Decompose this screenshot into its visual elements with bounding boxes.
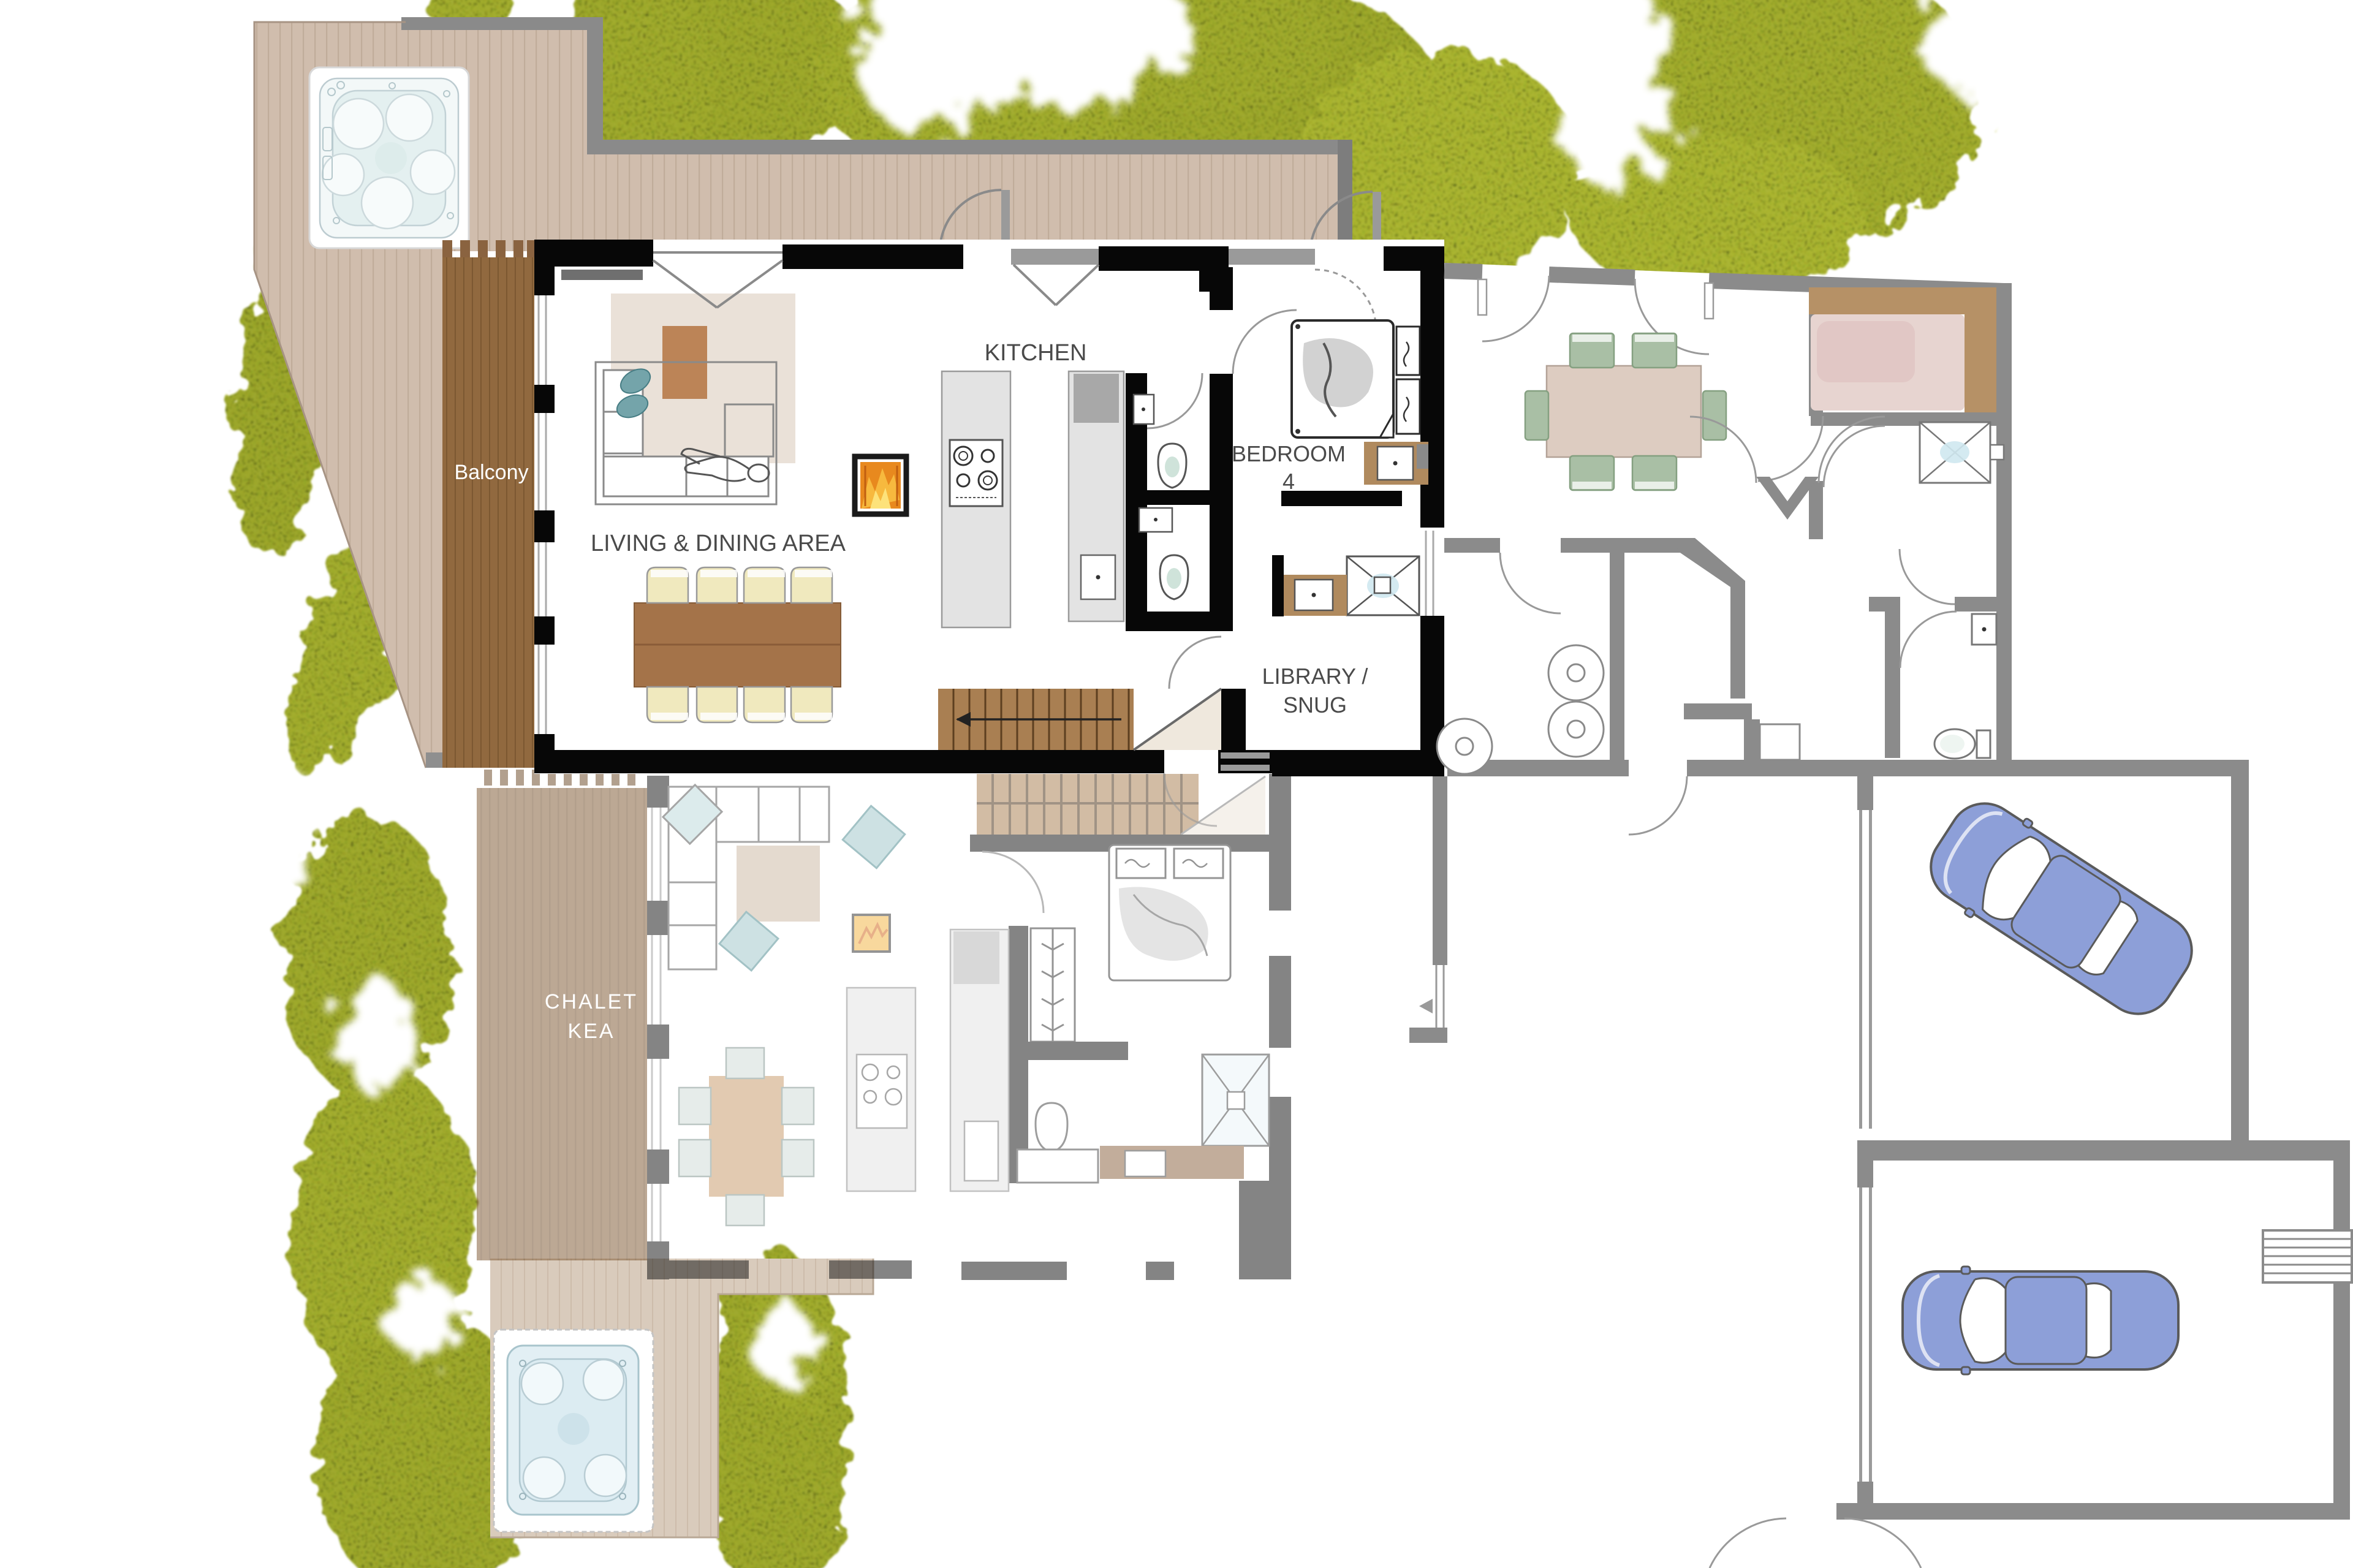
svg-text:SNUG: SNUG xyxy=(1283,692,1347,718)
svg-text:BEDROOM: BEDROOM xyxy=(1232,441,1346,466)
svg-text:KITCHEN: KITCHEN xyxy=(985,340,1087,366)
svg-text:Balcony: Balcony xyxy=(455,461,529,484)
svg-text:CHALET: CHALET xyxy=(545,990,638,1013)
svg-text:LIBRARY /: LIBRARY / xyxy=(1262,664,1368,689)
svg-text:LIVING & DINING AREA: LIVING & DINING AREA xyxy=(591,531,846,556)
svg-text:KEA: KEA xyxy=(567,1020,615,1043)
svg-text:4: 4 xyxy=(1283,469,1295,494)
